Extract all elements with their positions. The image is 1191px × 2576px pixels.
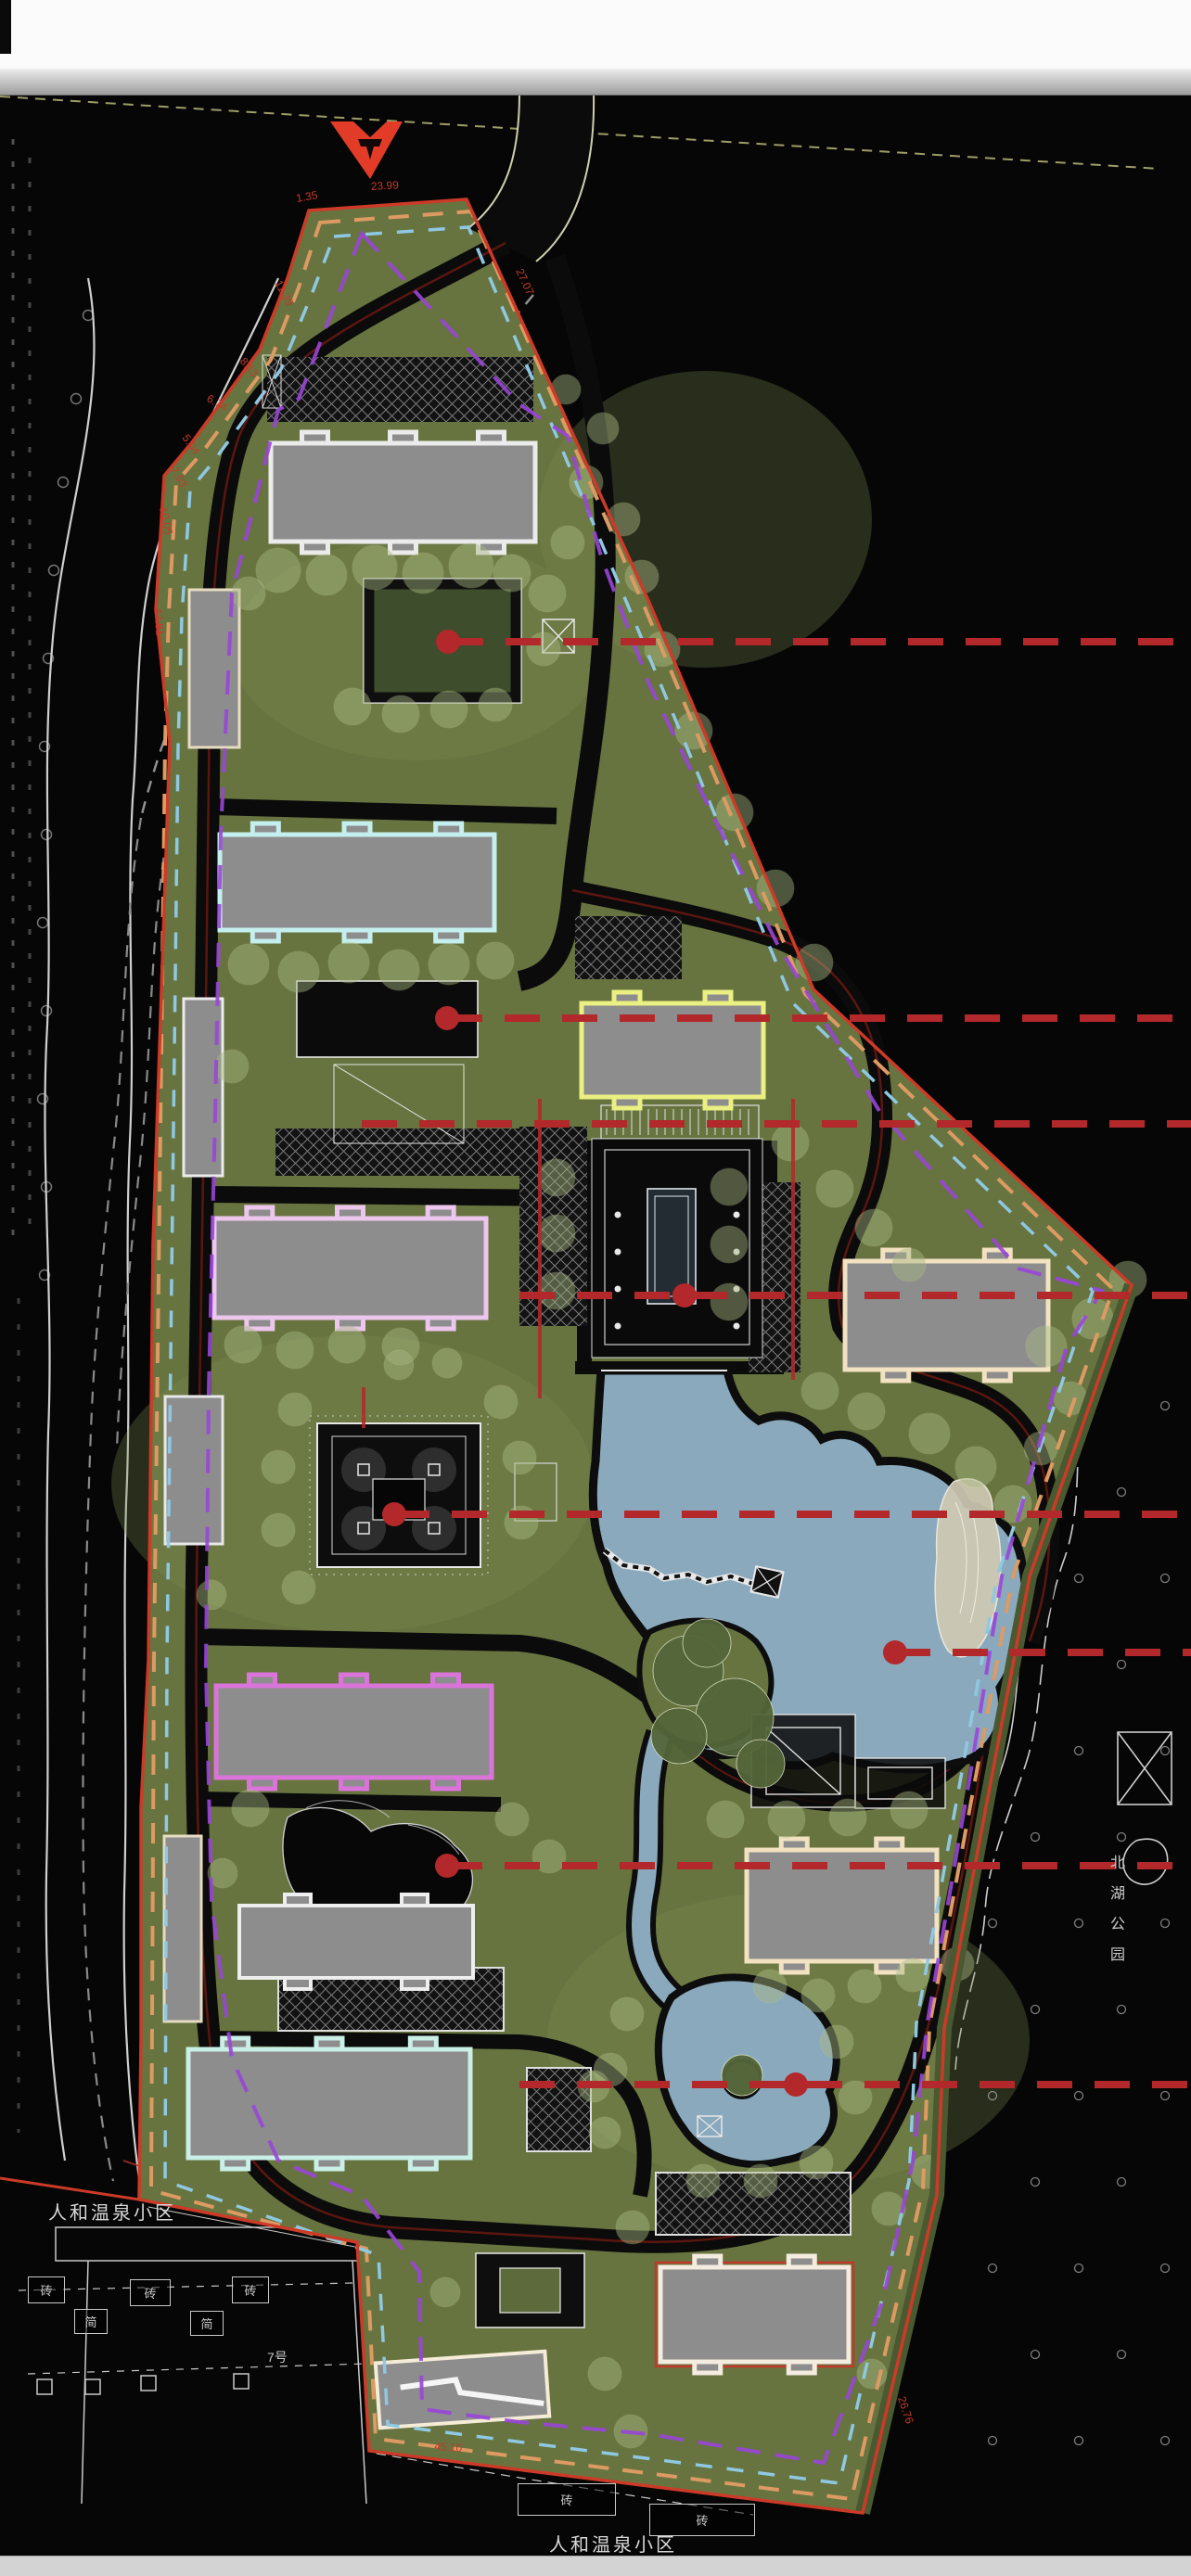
dimension-number: 23.99 — [370, 178, 399, 193]
park-grid-dot — [1161, 1402, 1170, 1410]
tree — [503, 1441, 536, 1474]
tree — [529, 575, 566, 612]
tree — [197, 1580, 226, 1610]
tree — [430, 2277, 460, 2307]
tree — [232, 1790, 269, 1827]
tree — [1026, 1326, 1067, 1367]
park-grid-dot — [989, 2264, 997, 2273]
tree — [527, 632, 560, 666]
neighborhood-label-box: 砖 — [232, 2276, 269, 2303]
park-grid-dot — [1031, 2351, 1040, 2359]
label-renhe-estate-west: 人和温泉小区 — [48, 2198, 176, 2225]
park-grid-dot — [1031, 2178, 1040, 2187]
top-letterbox — [0, 0, 1191, 69]
axis-dot — [672, 1283, 697, 1307]
dimension-number: 26.76 — [895, 2395, 916, 2426]
tree — [382, 695, 419, 733]
tree — [616, 2211, 649, 2244]
tree — [334, 688, 371, 725]
north-arrow-icon — [330, 121, 403, 179]
tree — [224, 1326, 262, 1363]
island-tree — [722, 2055, 762, 2096]
tree — [276, 1332, 314, 1369]
park-grid-dot — [1031, 1833, 1040, 1842]
hatch-area — [575, 916, 682, 979]
park-grid-dot — [1118, 2006, 1126, 2014]
tree — [278, 1393, 312, 1426]
slab-a — [271, 432, 535, 553]
tree — [228, 944, 269, 985]
axis-dot — [435, 1006, 459, 1030]
tree — [262, 1450, 295, 1484]
neighborhood-label-box: 砖 — [649, 2504, 755, 2536]
tree — [328, 942, 369, 983]
site-plan-drawing: 23.991.3511.398.136.745.047.0310.0547.81… — [0, 0, 1191, 2576]
axis-dot — [435, 1854, 459, 1878]
tree — [610, 1997, 644, 2031]
tree — [716, 794, 753, 831]
island-tree — [736, 1740, 785, 1788]
tree — [744, 2164, 777, 2198]
dimension-number: 45.10 — [434, 2440, 463, 2455]
site-plan-canvas: 23.991.3511.398.136.745.047.0310.0547.81… — [0, 0, 1191, 2576]
tree — [816, 1170, 853, 1207]
island-tree — [683, 1619, 731, 1667]
park-grid-dot — [1161, 1747, 1170, 1755]
tree — [479, 688, 512, 721]
pagoda-square-garden — [310, 1416, 488, 1575]
top-letterbox-gradient — [0, 69, 1191, 96]
tree — [686, 2164, 720, 2198]
park-grid-dot — [1075, 2092, 1083, 2100]
tilted-bar — [376, 2352, 549, 2429]
park-grid-dot — [1075, 1575, 1083, 1583]
tree — [352, 545, 397, 590]
tree — [855, 1209, 892, 1246]
slab-j — [747, 1839, 937, 1972]
tree — [328, 1326, 365, 1363]
park-grid-dot — [1118, 2178, 1126, 2187]
park-grid-dot — [989, 2437, 997, 2445]
tree — [801, 1979, 835, 2012]
park-grid-dot — [1075, 1919, 1083, 1928]
tree — [800, 2146, 833, 2179]
neighborhood-label-box: 砖 — [28, 2276, 65, 2303]
tree — [711, 1168, 748, 1205]
tree — [282, 1571, 315, 1604]
tree — [495, 1803, 529, 1836]
tree — [675, 712, 712, 749]
tree — [484, 1385, 518, 1419]
slab-h — [239, 1894, 473, 1989]
top-left-notch — [0, 0, 11, 54]
tree — [232, 577, 265, 610]
park-grid-dot — [1118, 1833, 1126, 1842]
park-grid-dot — [1161, 1919, 1170, 1928]
tree — [829, 1799, 866, 1836]
park-grid-dot — [1161, 2092, 1170, 2100]
island-tree — [651, 1708, 707, 1764]
tree — [493, 555, 531, 592]
tree — [896, 1958, 929, 1992]
tree — [384, 1350, 414, 1380]
park-grid-dot — [1118, 2351, 1126, 2359]
tree — [538, 1215, 575, 1252]
dimension-number: 27.07 — [513, 266, 537, 297]
tree — [753, 1970, 787, 2003]
tree — [538, 1159, 575, 1196]
park-grid-dot — [1075, 1747, 1083, 1755]
tree — [430, 691, 467, 728]
park-grid-dot — [1075, 2437, 1083, 2445]
tree — [707, 1801, 744, 1838]
tree — [955, 1447, 996, 1487]
tree — [215, 1050, 249, 1083]
tree — [589, 2117, 621, 2149]
tree — [909, 1413, 950, 1454]
neighborhood-label-box: 砖 — [518, 2483, 616, 2516]
tree — [820, 2025, 853, 2059]
axis-dot — [436, 630, 460, 654]
park-grid-dot — [1118, 1661, 1126, 1669]
hatch-area — [267, 357, 533, 422]
slab-k — [656, 2256, 853, 2373]
slab-c — [214, 1207, 486, 1329]
dimension-number: 47.81 — [151, 607, 167, 636]
bottom-letterbox — [0, 2556, 1191, 2576]
tree — [378, 950, 419, 990]
slab-i — [188, 2038, 470, 2169]
tree — [429, 944, 469, 985]
axis-dot — [382, 1502, 406, 1526]
park-grid-dot — [1118, 1488, 1126, 1497]
tree — [449, 543, 493, 588]
entry-drive — [468, 93, 594, 261]
axis-dot — [883, 1640, 907, 1664]
slab-b — [220, 823, 494, 941]
tree — [768, 1801, 805, 1838]
tree — [892, 1248, 926, 1282]
neighborhood-label-box: 砖 — [130, 2279, 171, 2306]
park-grid-dot — [989, 1919, 997, 1928]
tree — [801, 1372, 839, 1409]
park-grid-dot — [1161, 1575, 1170, 1583]
tree — [848, 1393, 885, 1430]
slab-d — [582, 992, 763, 1108]
tree — [711, 1283, 748, 1320]
tree — [403, 553, 443, 593]
neighborhood-label-box: 简 — [190, 2311, 224, 2336]
tree — [711, 1226, 748, 1263]
park-grid-dot — [1161, 2264, 1170, 2273]
tree — [551, 526, 584, 559]
tree — [588, 2357, 621, 2391]
slab-f — [165, 1396, 223, 1544]
slab-v3 — [164, 1836, 201, 2021]
park-grid-dot — [1031, 2006, 1040, 2014]
tree — [262, 1513, 295, 1547]
tree — [477, 942, 514, 979]
park-grid-dot — [1075, 2264, 1083, 2273]
tree — [538, 1272, 575, 1309]
slab-g — [216, 1675, 492, 1789]
tree — [306, 555, 347, 595]
tree — [587, 413, 619, 444]
tree — [848, 1970, 881, 2003]
neighborhood-label-box: 简 — [74, 2309, 108, 2334]
tree — [857, 2359, 887, 2389]
axis-dot — [784, 2072, 808, 2097]
tree — [890, 1792, 928, 1829]
tree — [278, 951, 319, 992]
park-grid-dot — [1161, 2437, 1170, 2445]
dimension-number: 1.35 — [295, 188, 319, 205]
tree — [772, 1124, 809, 1161]
court-square — [476, 2253, 584, 2327]
label-building-no7: 7号 — [267, 2348, 288, 2366]
label-north-lake-park: 北湖公园 — [1104, 1855, 1126, 1977]
tree — [432, 1348, 462, 1378]
